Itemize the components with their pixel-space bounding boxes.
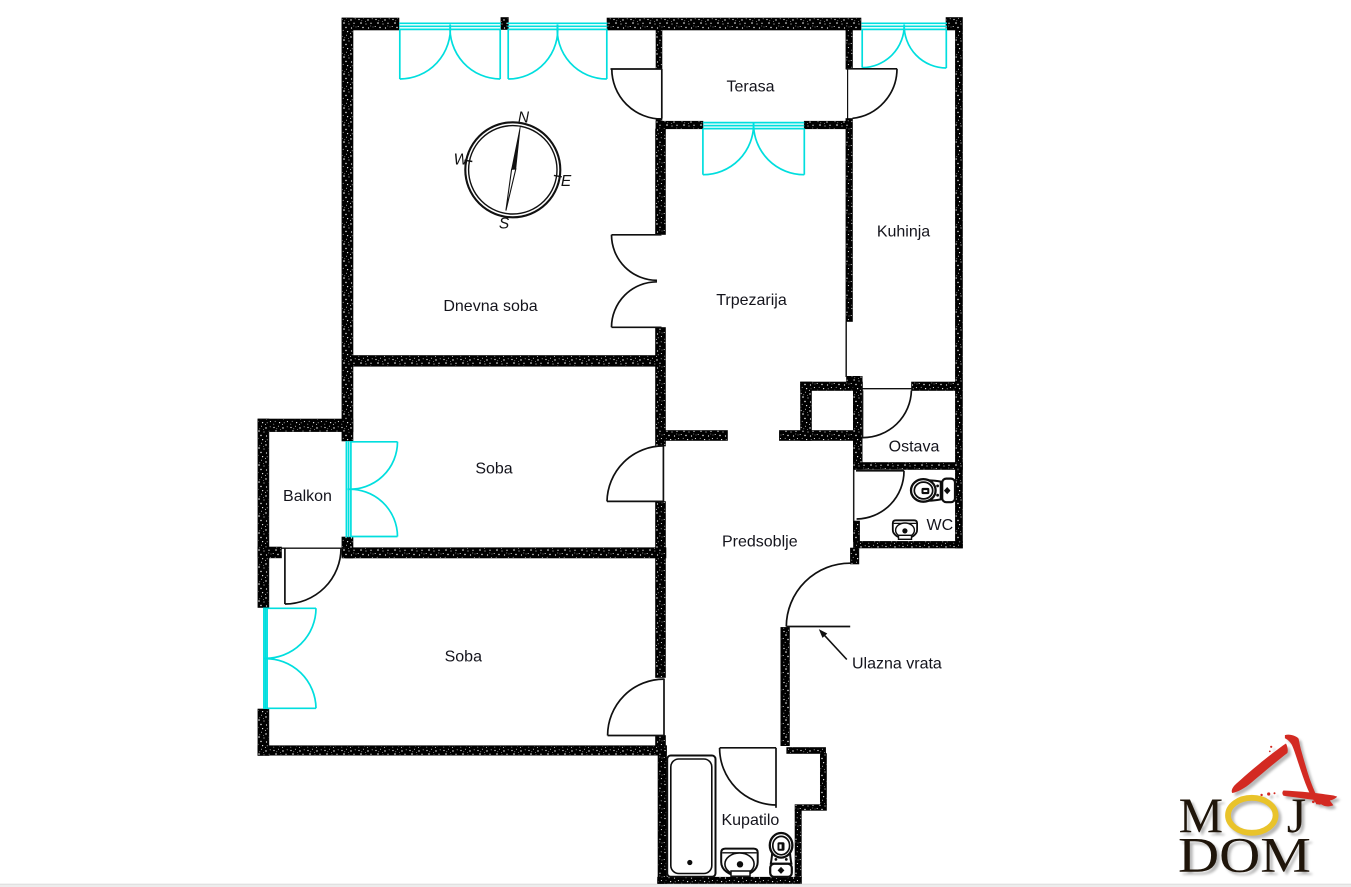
svg-text:W: W (454, 152, 470, 169)
svg-text:E: E (561, 173, 572, 190)
svg-text:Terasa: Terasa (726, 78, 774, 95)
svg-text:Kuhinja: Kuhinja (877, 224, 930, 241)
svg-text:Ostava: Ostava (889, 439, 940, 456)
svg-text:Soba: Soba (475, 461, 512, 478)
svg-text:DOM: DOM (1178, 827, 1311, 883)
svg-text:Soba: Soba (445, 649, 482, 666)
svg-text:Dnevna soba: Dnevna soba (443, 298, 537, 315)
svg-text:S: S (499, 216, 510, 233)
svg-text:Predsoblje: Predsoblje (722, 534, 798, 551)
svg-text:Balkon: Balkon (283, 488, 332, 505)
svg-text:N: N (518, 110, 530, 127)
svg-text:Ulazna vrata: Ulazna vrata (852, 656, 942, 673)
svg-text:Trpezarija: Trpezarija (716, 292, 787, 309)
svg-text:WC: WC (926, 517, 953, 534)
svg-text:Kupatilo: Kupatilo (721, 812, 779, 829)
